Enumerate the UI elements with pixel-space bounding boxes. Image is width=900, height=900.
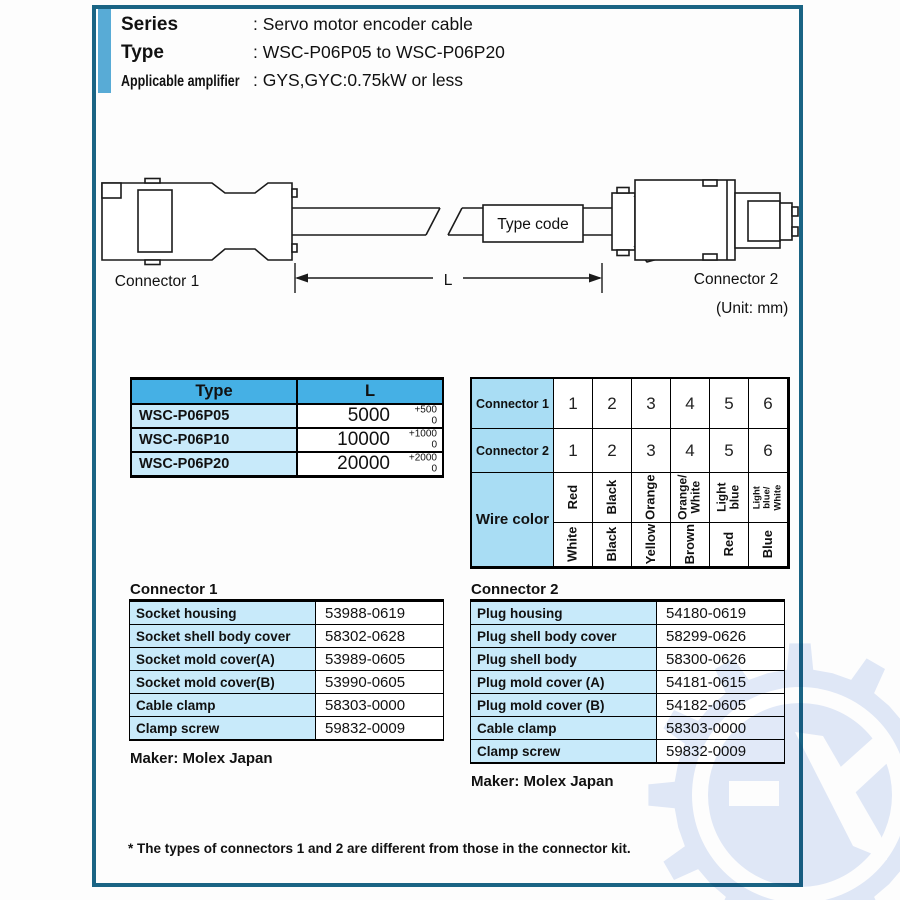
parts-table-row: Socket housing53988-0619	[130, 602, 443, 624]
tolerance-lower: 0	[409, 464, 437, 475]
wire-color-text: Red	[722, 532, 736, 557]
wire-color-text: Black	[605, 480, 619, 515]
right-arrowhead	[589, 274, 602, 283]
part-name-cell: Socket housing	[130, 602, 316, 624]
length-dimension-label: L	[444, 272, 453, 289]
amplifier-label: Applicable amplifier	[121, 73, 224, 91]
connector1-pin-cell: 5	[710, 379, 749, 429]
type-name-cell: WSC-P06P05	[132, 405, 298, 427]
type-table-row: WSC-P06P2020000+20000	[132, 451, 442, 475]
pin-row-label-connector1: Connector 1	[472, 379, 554, 429]
length-value-cell: 5000+5000	[298, 405, 442, 427]
connector1-pin-cell: 1	[554, 379, 593, 429]
tolerance-upper: +2000	[409, 454, 437, 465]
part-name-cell: Cable clamp	[130, 694, 316, 716]
part-name-cell: Clamp screw	[471, 740, 657, 762]
length-tolerance: +20000	[409, 454, 437, 475]
length-value: 20000	[337, 453, 390, 475]
wire-color-text: Brown	[683, 524, 697, 564]
wire-color-cell: Blue	[749, 523, 788, 567]
length-tolerance: +5000	[414, 406, 437, 427]
connector1-pin-cell: 6	[749, 379, 788, 429]
wire-color-cell: Orange	[632, 473, 671, 523]
cable-diagram: Type code Connector 1 Connector 2 L	[95, 160, 800, 325]
watermark-gear-logo	[645, 640, 900, 900]
connector2-drawing	[612, 180, 798, 262]
length-tolerance: +10000	[409, 430, 437, 451]
part-number-cell: 53988-0619	[316, 602, 443, 624]
type-label: Type	[121, 42, 253, 64]
wire-color-text: Yellow	[644, 524, 658, 564]
wire-color-cell: Brown	[671, 523, 710, 567]
type-length-table: Type L WSC-P06P055000+5000WSC-P06P101000…	[130, 377, 444, 478]
type-name-cell: WSC-P06P20	[132, 453, 298, 475]
connector1-pin-cell: 2	[593, 379, 632, 429]
wire-color-text: Orange/ White	[677, 475, 703, 520]
parts-table-row: Cable clamp58303-0000	[130, 693, 443, 716]
length-value-cell: 10000+10000	[298, 429, 442, 451]
wire-color-cell: Orange/ White	[671, 473, 710, 523]
unit-label: (Unit: mm)	[716, 300, 788, 318]
part-number-cell: 54180-0619	[657, 602, 784, 624]
datasheet-page: Series : Servo motor encoder cable Type …	[0, 0, 900, 900]
part-name-cell: Plug housing	[471, 602, 657, 624]
type-table-header: Type L	[132, 380, 442, 405]
connector2-parts-title: Connector 2	[471, 581, 559, 598]
type-name-cell: WSC-P06P10	[132, 429, 298, 451]
connector1-drawing	[102, 179, 297, 265]
wire-color-text: White	[566, 527, 580, 562]
part-name-cell: Cable clamp	[471, 717, 657, 739]
type-column-header: Type	[132, 380, 298, 403]
wire-color-cell: Light blue/ White	[749, 473, 788, 523]
length-column-header: L	[298, 380, 442, 403]
header-row-series: Series : Servo motor encoder cable	[121, 14, 473, 36]
wire-color-cell: Red	[554, 473, 593, 523]
part-name-cell: Plug shell body cover	[471, 625, 657, 647]
parts-table-row: Socket shell body cover58302-0628	[130, 624, 443, 647]
wire-color-cell: Black	[593, 523, 632, 567]
part-name-cell: Plug mold cover (B)	[471, 694, 657, 716]
connector1-parts-title: Connector 1	[130, 581, 218, 598]
parts-table-row: Clamp screw59832-0009	[130, 716, 443, 739]
connector1-pin-cell: 4	[671, 379, 710, 429]
connector1-maker: Maker: Molex Japan	[130, 750, 273, 767]
wire-color-cell: Light blue	[710, 473, 749, 523]
connector2-pin-cell: 4	[671, 429, 710, 473]
tolerance-lower: 0	[414, 416, 437, 427]
length-value-cell: 20000+20000	[298, 453, 442, 475]
wire-color-cell: White	[554, 523, 593, 567]
connector2-maker: Maker: Molex Japan	[471, 773, 614, 790]
part-name-cell: Plug mold cover (A)	[471, 671, 657, 693]
connector2-pin-cell: 6	[749, 429, 788, 473]
connector1-parts-table: Socket housing53988-0619Socket shell bod…	[129, 599, 444, 741]
part-name-cell: Socket mold cover(B)	[130, 671, 316, 693]
wire-color-cell: Black	[593, 473, 632, 523]
part-name-cell: Clamp screw	[130, 717, 316, 739]
series-value: : Servo motor encoder cable	[253, 14, 473, 35]
wire-color-cell: Red	[710, 523, 749, 567]
part-number-cell: 53990-0605	[316, 671, 443, 693]
part-name-cell: Plug shell body	[471, 648, 657, 670]
parts-table-row: Plug housing54180-0619	[471, 602, 784, 624]
type-table-body: WSC-P06P055000+5000WSC-P06P1010000+10000…	[132, 405, 442, 475]
header-accent-bar	[98, 9, 111, 93]
parts-table-row: Socket mold cover(B)53990-0605	[130, 670, 443, 693]
tolerance-upper: +500	[414, 406, 437, 417]
wire-color-row-label: Wire color	[472, 473, 554, 567]
wire-color-text: Red	[566, 485, 580, 510]
header-row-amplifier: Applicable amplifier : GYS,GYC:0.75kW or…	[121, 70, 463, 91]
part-number-cell: 58303-0000	[316, 694, 443, 716]
type-table-row: WSC-P06P1010000+10000	[132, 427, 442, 451]
tolerance-upper: +1000	[409, 430, 437, 441]
footnote: * The types of connectors 1 and 2 are di…	[128, 841, 631, 856]
part-name-cell: Socket mold cover(A)	[130, 648, 316, 670]
tolerance-lower: 0	[409, 440, 437, 451]
left-arrowhead	[295, 274, 308, 283]
wire-color-text: Orange	[644, 475, 658, 521]
part-number-cell: 58302-0628	[316, 625, 443, 647]
length-value: 5000	[348, 405, 390, 427]
parts-table-row: Socket mold cover(A)53989-0605	[130, 647, 443, 670]
series-label: Series	[121, 14, 253, 36]
connector2-pin-cell: 1	[554, 429, 593, 473]
wire-color-text: Light blue/ White	[752, 479, 783, 517]
pin-wire-color-table: Connector 1123456Connector 2123456Wire c…	[470, 377, 790, 569]
connector2-pin-cell: 3	[632, 429, 671, 473]
amplifier-value: : GYS,GYC:0.75kW or less	[253, 70, 463, 91]
part-number-cell: 53989-0605	[316, 648, 443, 670]
wire-color-cell: Yellow	[632, 523, 671, 567]
wire-color-text: Black	[605, 527, 619, 562]
length-value: 10000	[337, 429, 390, 451]
connector2-pin-cell: 5	[710, 429, 749, 473]
connector2-pin-cell: 2	[593, 429, 632, 473]
part-name-cell: Socket shell body cover	[130, 625, 316, 647]
wire-color-text: Light blue	[716, 483, 742, 512]
connector2-caption: Connector 2	[694, 271, 778, 288]
connector1-pin-cell: 3	[632, 379, 671, 429]
connector1-caption: Connector 1	[115, 273, 199, 290]
wire-color-text: Blue	[761, 530, 775, 558]
type-value: : WSC-P06P05 to WSC-P06P20	[253, 42, 505, 63]
type-code-label: Type code	[497, 216, 569, 233]
pin-row-label-connector2: Connector 2	[472, 429, 554, 473]
part-number-cell: 59832-0009	[316, 717, 443, 739]
type-table-row: WSC-P06P055000+5000	[132, 405, 442, 427]
header-row-type: Type : WSC-P06P05 to WSC-P06P20	[121, 42, 505, 64]
